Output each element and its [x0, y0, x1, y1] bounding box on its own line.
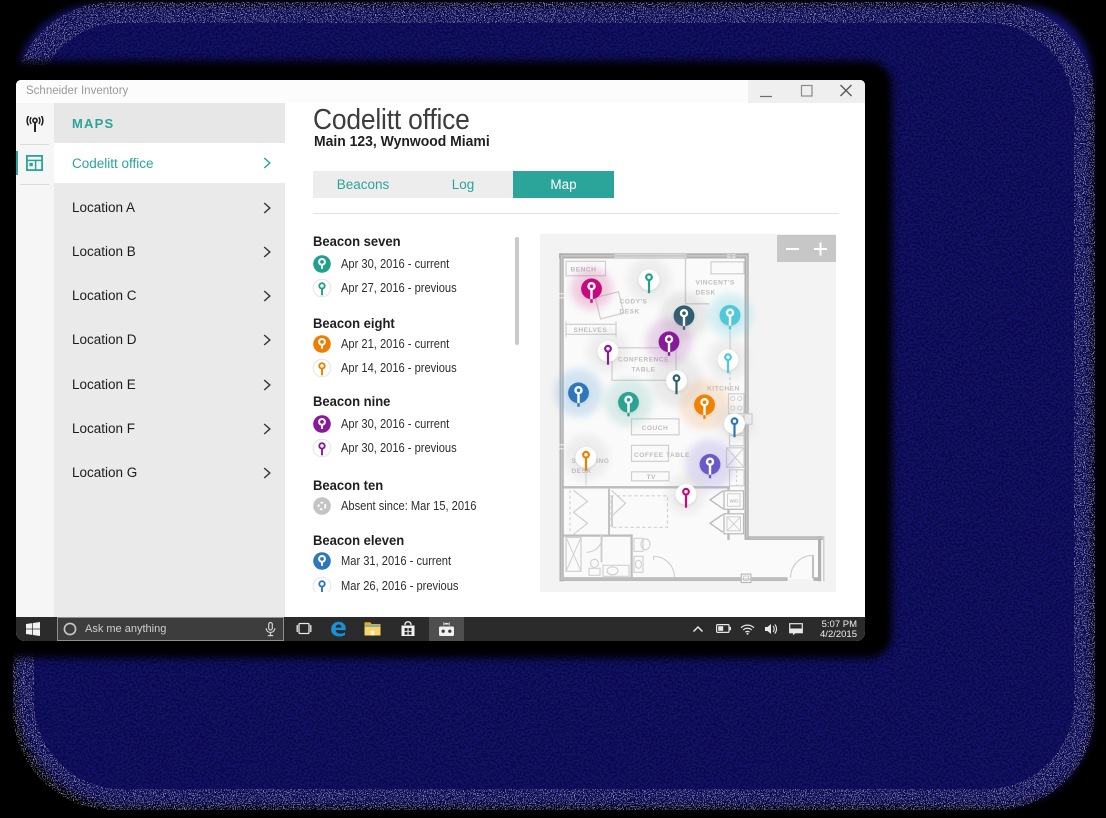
svg-text:TV: TV — [646, 474, 656, 481]
svg-text:COFFEE TABLE: COFFEE TABLE — [634, 451, 690, 458]
svg-text:DESK: DESK — [619, 308, 639, 315]
svg-text:DESK: DESK — [695, 289, 715, 296]
svg-text:W/D: W/D — [729, 498, 739, 503]
svg-text:COUCH: COUCH — [641, 424, 668, 431]
svg-text:VINCENT'S: VINCENT'S — [695, 279, 734, 286]
